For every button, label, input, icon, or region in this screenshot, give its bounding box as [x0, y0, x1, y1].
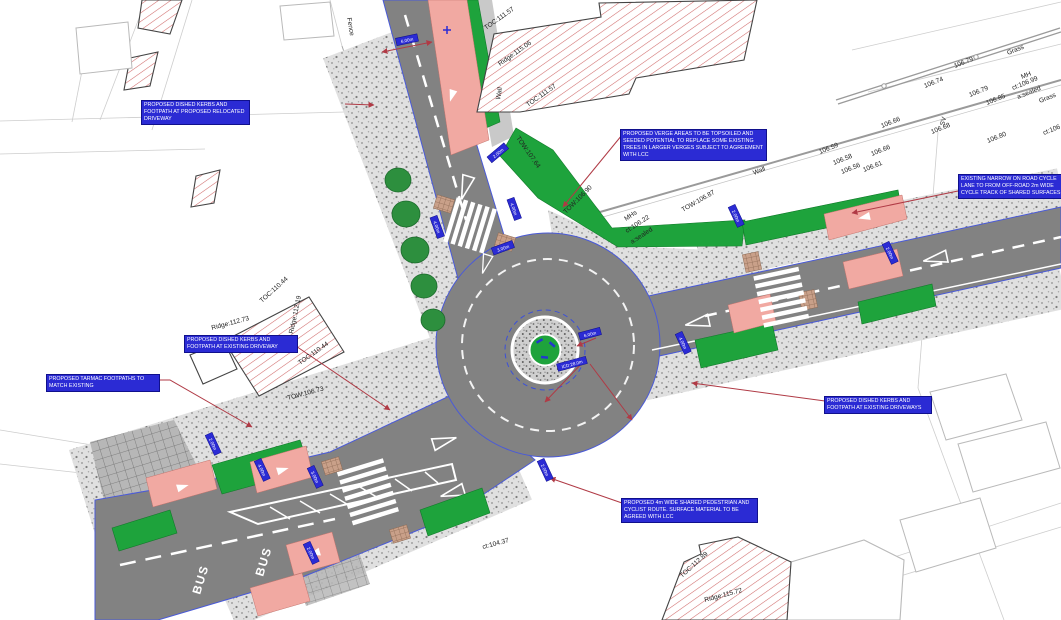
- site-plan-drawing: BUS BUS: [0, 0, 1061, 620]
- note-tarmac-footpaths: PROPOSED TARMAC FOOTPATHS TO MATCH EXIST…: [46, 374, 160, 392]
- building-bottom-right-outline: [787, 540, 904, 620]
- svg-text:106.56: 106.56: [840, 162, 862, 176]
- roundabout-centre-island: [505, 310, 585, 390]
- svg-text:ct:104.37: ct:104.37: [482, 537, 510, 551]
- note-existing-cycle-lane: EXISTING NARROW ON ROAD CYCLE LANE TO FR…: [958, 174, 1061, 199]
- svg-text:ct:106: ct:106: [1042, 124, 1061, 137]
- svg-text:106.66: 106.66: [870, 144, 892, 158]
- svg-text:106.80: 106.80: [986, 131, 1008, 145]
- svg-text:106.59: 106.59: [818, 142, 840, 156]
- note-dished-kerbs-existing-driveway: PROPOSED DISHED KERBS AND FOOTPATH AT EX…: [184, 335, 298, 353]
- svg-text:106.79: 106.79: [968, 85, 990, 99]
- building-top: [477, 0, 757, 112]
- svg-text:TOC:110.44: TOC:110.44: [259, 275, 290, 304]
- site-plan-canvas: BUS BUS: [0, 0, 1061, 620]
- svg-text:Grass: Grass: [1038, 92, 1058, 105]
- svg-text:TOW:106.87: TOW:106.87: [681, 189, 717, 214]
- svg-text:Ridge:112.73: Ridge:112.73: [211, 315, 251, 332]
- note-verge-areas-topsoiled: PROPOSED VERGE AREAS TO BE TOPSOILED AND…: [620, 129, 767, 161]
- note-dished-kerbs-existing-driveways: PROPOSED DISHED KERBS AND FOOTPATH AT EX…: [824, 396, 932, 414]
- svg-text:106.85: 106.85: [985, 93, 1007, 107]
- note-dished-kerbs-relocated-driveway: PROPOSED DISHED KERBS AND FOOTPATH AT PR…: [141, 100, 250, 125]
- svg-text:Fence: Fence: [345, 17, 355, 37]
- note-shared-pedestrian-cyclist-route: PROPOSED 4m WIDE SHARED PEDESTRIAN AND C…: [621, 498, 758, 523]
- svg-text:106.61: 106.61: [862, 160, 884, 174]
